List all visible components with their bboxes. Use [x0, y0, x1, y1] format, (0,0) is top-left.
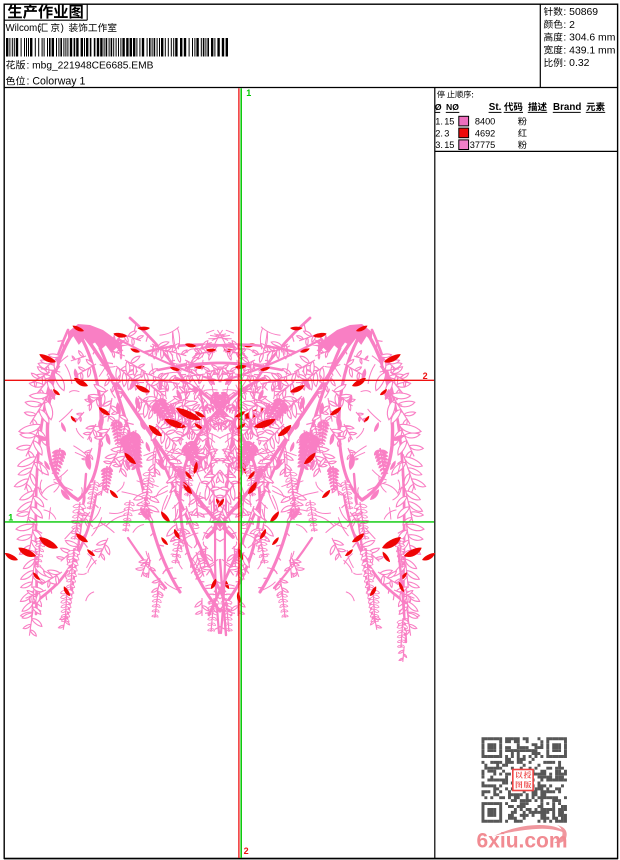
svg-text:1.: 1.: [435, 117, 443, 127]
svg-text:: 50869: : 50869: [563, 7, 598, 18]
svg-text:NØ: NØ: [446, 102, 459, 112]
svg-text:3.: 3.: [435, 140, 443, 150]
svg-text:: mbg_221948CE6685.EMB: : mbg_221948CE6685.EMB: [27, 61, 154, 72]
svg-text:15: 15: [444, 117, 454, 127]
svg-text:: Colorway 1: : Colorway 1: [27, 76, 86, 88]
svg-text:2.: 2.: [435, 128, 443, 138]
svg-text:Ø: Ø: [435, 102, 442, 112]
svg-text:Brand: Brand: [553, 102, 581, 113]
svg-text:1: 1: [246, 88, 251, 98]
svg-text:37775: 37775: [470, 140, 496, 150]
svg-text:3: 3: [444, 128, 449, 138]
svg-text:: 2: : 2: [563, 20, 575, 31]
svg-text:: 304.6 mm: : 304.6 mm: [563, 33, 615, 44]
svg-text:2: 2: [423, 371, 428, 381]
svg-text:4692: 4692: [475, 128, 495, 138]
svg-text:8400: 8400: [475, 117, 495, 127]
svg-text:2: 2: [244, 846, 249, 856]
svg-text:15: 15: [444, 140, 454, 150]
svg-text:1: 1: [8, 512, 13, 522]
svg-text:St.: St.: [489, 102, 502, 113]
svg-text:): ): [61, 23, 64, 34]
svg-text:Wilcom(: Wilcom(: [6, 23, 42, 34]
svg-text:: 439.1 mm: : 439.1 mm: [563, 45, 615, 56]
svg-text:: 0.32: : 0.32: [563, 58, 589, 69]
svg-text:6xiu.com: 6xiu.com: [477, 830, 568, 853]
